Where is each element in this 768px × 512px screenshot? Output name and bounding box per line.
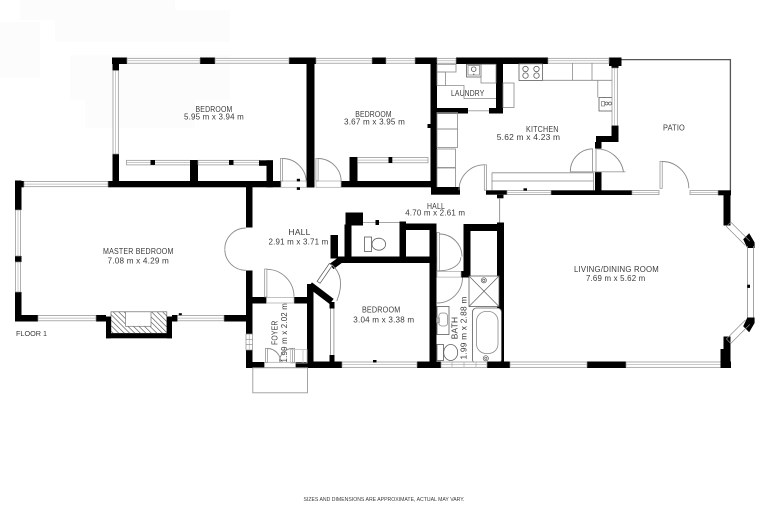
svg-text:3.04 m x 3.38 m: 3.04 m x 3.38 m xyxy=(353,315,414,324)
svg-text:PATIO: PATIO xyxy=(663,124,685,133)
svg-text:HALL: HALL xyxy=(289,228,311,237)
svg-text:7.08 m x 4.29 m: 7.08 m x 4.29 m xyxy=(108,256,170,265)
svg-text:LIVING/DINING ROOM: LIVING/DINING ROOM xyxy=(574,265,659,274)
svg-text:1.99 m x 2.88 m: 1.99 m x 2.88 m xyxy=(460,296,469,359)
svg-text:LAUNDRY: LAUNDRY xyxy=(451,89,485,98)
svg-text:SIZES AND DIMENSIONS ARE APPRO: SIZES AND DIMENSIONS ARE APPROXIMATE, AC… xyxy=(304,497,465,503)
svg-text:BATH: BATH xyxy=(451,317,460,340)
svg-text:4.70 m x 2.61 m: 4.70 m x 2.61 m xyxy=(405,209,465,218)
svg-text:7.69 m x 5.62 m: 7.69 m x 5.62 m xyxy=(586,274,646,283)
svg-text:3.67 m x 3.95 m: 3.67 m x 3.95 m xyxy=(344,117,405,126)
svg-text:FOYER: FOYER xyxy=(271,320,280,345)
svg-text:5.62 m x 4.23 m: 5.62 m x 4.23 m xyxy=(497,133,561,142)
svg-text:MASTER BEDROOM: MASTER BEDROOM xyxy=(103,247,174,256)
svg-text:2.91 m x 3.71 m: 2.91 m x 3.71 m xyxy=(269,238,329,247)
svg-text:FLOOR 1: FLOOR 1 xyxy=(16,329,47,338)
svg-text:1.99 m x 2.02 m: 1.99 m x 2.02 m xyxy=(280,303,289,363)
svg-text:BEDROOM: BEDROOM xyxy=(362,306,401,315)
svg-text:5.95 m x 3.94 m: 5.95 m x 3.94 m xyxy=(184,113,244,122)
